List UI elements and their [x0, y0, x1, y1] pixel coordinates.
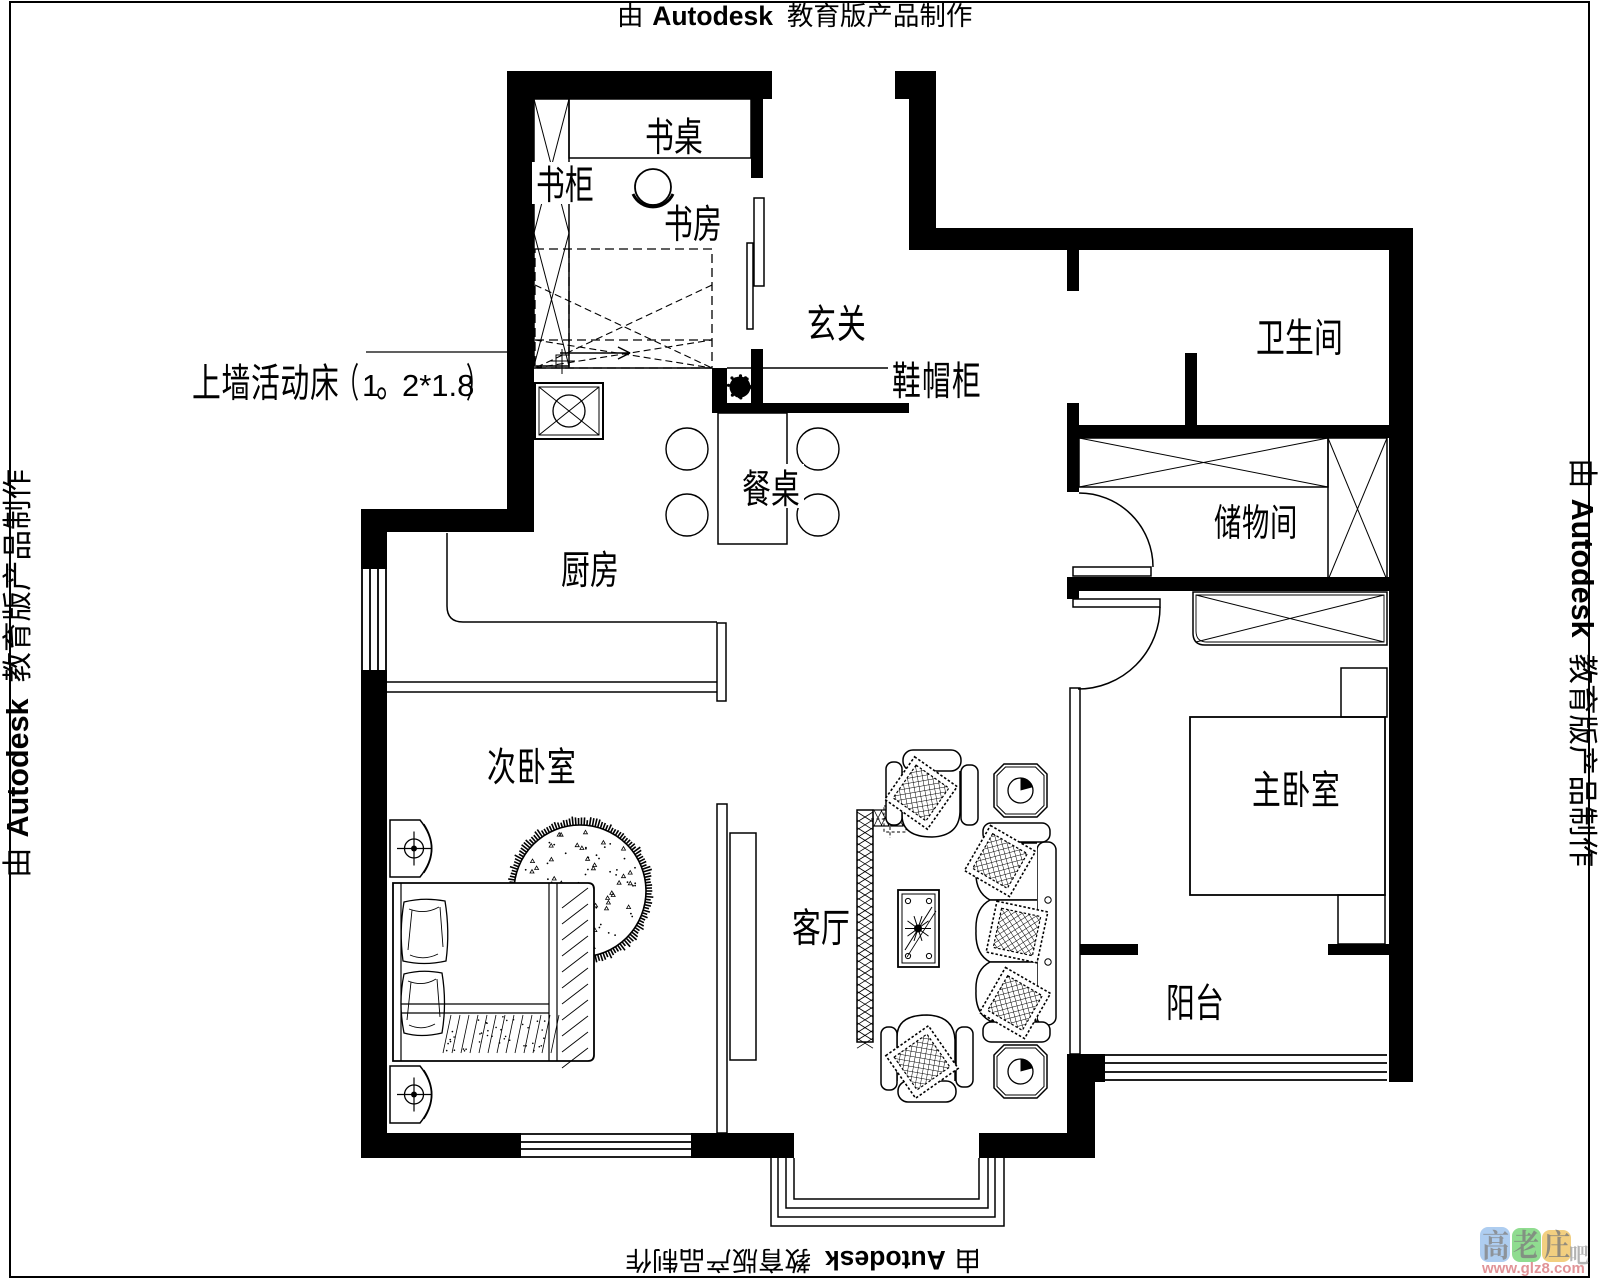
svg-text:Autodesk: Autodesk	[652, 1, 773, 31]
svg-text:www.glz8.com: www.glz8.com	[1481, 1260, 1585, 1277]
svg-text:2*1.8: 2*1.8	[402, 368, 474, 403]
svg-text:Autodesk: Autodesk	[1565, 499, 1599, 638]
svg-text:1: 1	[362, 368, 379, 403]
svg-text:Autodesk: Autodesk	[1, 698, 35, 837]
svg-text:Autodesk: Autodesk	[825, 1245, 946, 1275]
